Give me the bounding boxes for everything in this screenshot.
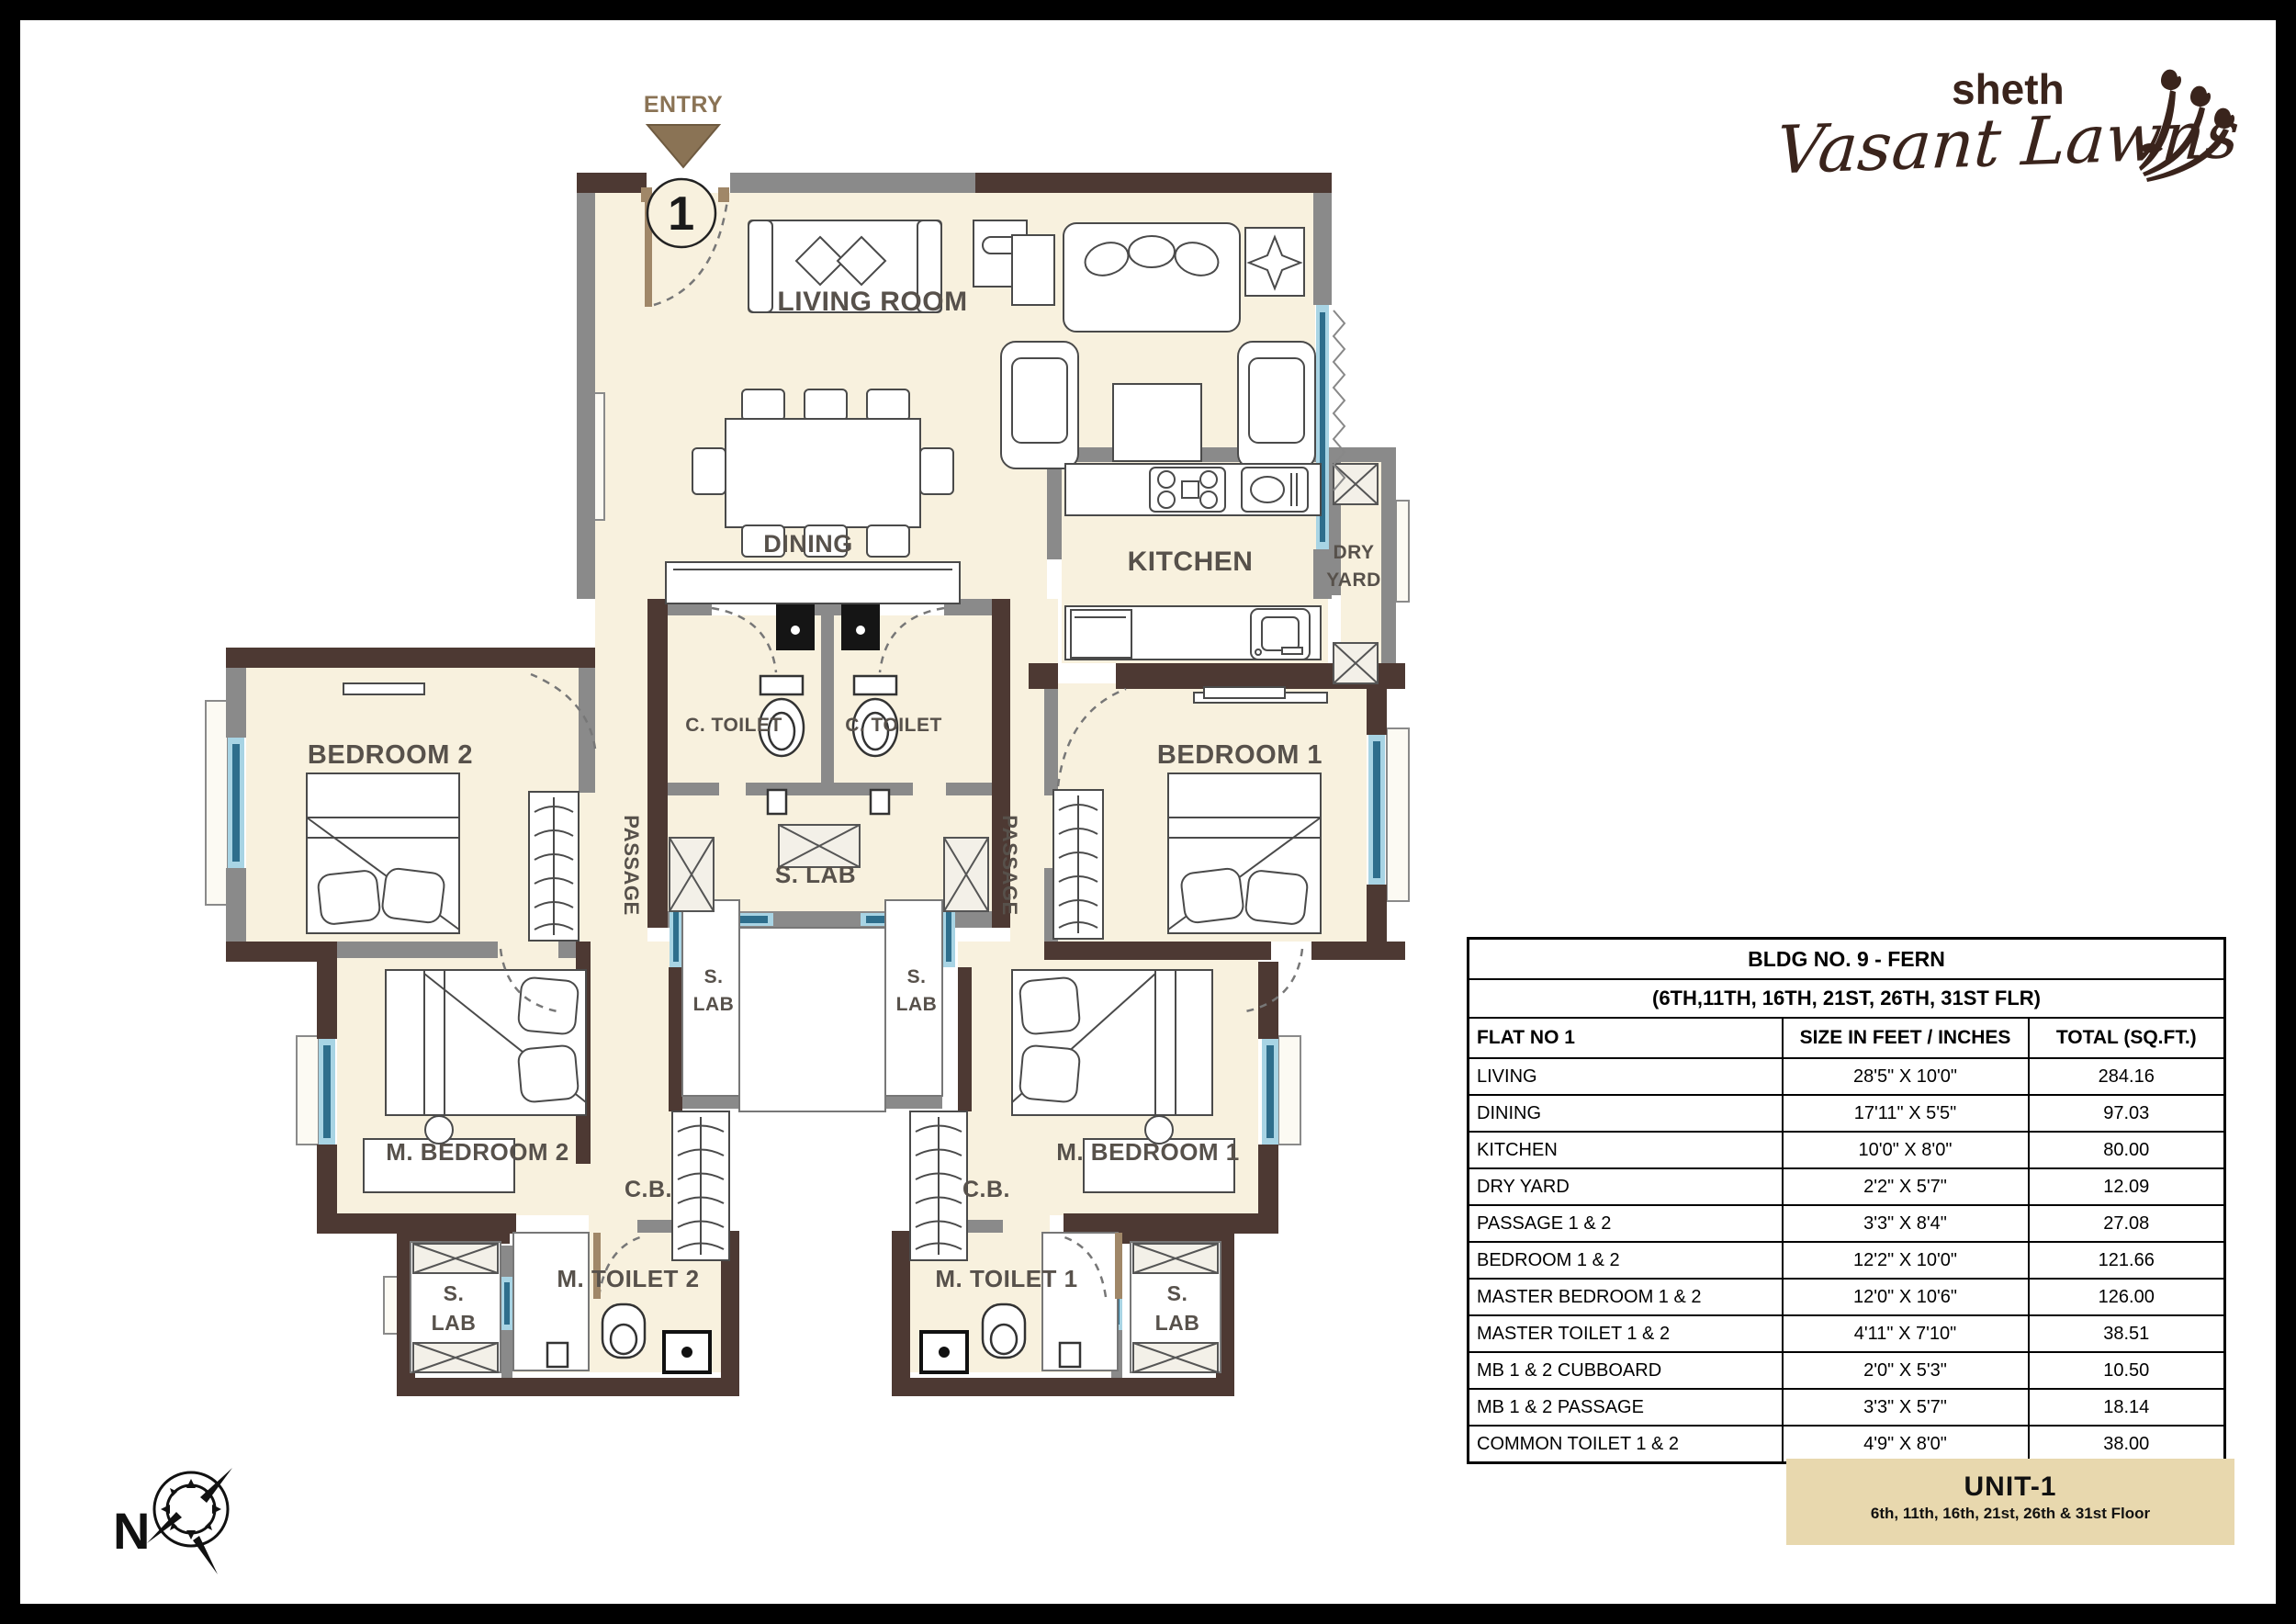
table-row: KITCHEN10'0" X 8'0"80.00	[1469, 1132, 2225, 1168]
label-bedroom-2: BEDROOM 2	[308, 740, 473, 770]
label-s-lab-center: S. LAB	[775, 861, 856, 888]
table-cell: 2'2" X 5'7"	[1783, 1168, 2029, 1205]
table-cell: 28'5" X 10'0"	[1783, 1058, 2029, 1095]
table-cell: 38.00	[2029, 1426, 2225, 1463]
table-cell: BEDROOM 1 & 2	[1469, 1242, 1783, 1279]
label-dry-yard-line2: YARD	[1326, 570, 1381, 591]
label-dry-yard-line1: DRY	[1333, 542, 1374, 563]
table-row: LIVING28'5" X 10'0"284.16	[1469, 1058, 2225, 1095]
table-cell: 18.14	[2029, 1389, 2225, 1426]
label-s-lab-shaft-right-2: LAB	[896, 994, 938, 1015]
logo-script: Vasant Lawns	[1773, 98, 2175, 189]
label-bedroom-1: BEDROOM 1	[1157, 740, 1322, 770]
sheet: ENTRY1LIVING ROOMDININGKITCHENDRYYARDC. …	[20, 20, 2276, 1604]
floorplan: ENTRY1LIVING ROOMDININGKITCHENDRYYARDC. …	[138, 73, 1442, 1442]
table-row: BEDROOM 1 & 212'2" X 10'0"121.66	[1469, 1242, 2225, 1279]
compass-icon: N	[96, 1440, 326, 1606]
table-cell: KITCHEN	[1469, 1132, 1783, 1168]
label-c-toilet-1: C. TOILET	[845, 715, 942, 736]
table-row: MASTER BEDROOM 1 & 212'0" X 10'6"126.00	[1469, 1279, 2225, 1315]
table-row: PASSAGE 1 & 23'3" X 8'4"27.08	[1469, 1205, 2225, 1242]
label-dining: DINING	[763, 530, 853, 558]
label-passage-2: PASSAGE	[998, 815, 1021, 915]
tulip-flowers-icon	[2137, 64, 2238, 193]
col-header-flat: FLAT NO 1	[1469, 1018, 1783, 1058]
table-cell: 17'11" X 5'5"	[1783, 1095, 2029, 1132]
label-c-toilet-2: C. TOILET	[685, 715, 782, 736]
table-cell: 2'0" X 5'3"	[1783, 1352, 2029, 1389]
table-cell: MB 1 & 2 CUBBOARD	[1469, 1352, 1783, 1389]
table-row: MB 1 & 2 PASSAGE3'3" X 5'7"18.14	[1469, 1389, 2225, 1426]
label-s-lab-shaft-right-1: S.	[907, 966, 927, 987]
page: ENTRY1LIVING ROOMDININGKITCHENDRYYARDC. …	[0, 0, 2296, 1624]
table-cell: 38.51	[2029, 1315, 2225, 1352]
label-s-lab-bl-1: S.	[444, 1281, 465, 1305]
table-subtitle: (6TH,11TH, 16TH, 21ST, 26TH, 31ST FLR)	[1469, 979, 2225, 1018]
table-cell: 12'0" X 10'6"	[1783, 1279, 2029, 1315]
table-cell: 121.66	[2029, 1242, 2225, 1279]
table-cell: 126.00	[2029, 1279, 2225, 1315]
table-cell: 4'9" X 8'0"	[1783, 1426, 2029, 1463]
label-kitchen: KITCHEN	[1128, 547, 1254, 577]
table-cell: COMMON TOILET 1 & 2	[1469, 1426, 1783, 1463]
label-m-bedroom-1: M. BEDROOM 1	[1056, 1138, 1240, 1166]
label-entry: ENTRY	[644, 92, 723, 118]
table-cell: 27.08	[2029, 1205, 2225, 1242]
logo: sheth Vasant Lawns	[1777, 48, 2255, 241]
table-cell: LIVING	[1469, 1058, 1783, 1095]
label-entry-door-number: 1	[668, 187, 694, 241]
label-s-lab-shaft-left-1: S.	[704, 966, 724, 987]
label-m-toilet-2: M. TOILET 2	[557, 1265, 699, 1292]
table-row: MB 1 & 2 CUBBOARD2'0" X 5'3"10.50	[1469, 1352, 2225, 1389]
table-cell: MASTER TOILET 1 & 2	[1469, 1315, 1783, 1352]
table-row: DRY YARD2'2" X 5'7"12.09	[1469, 1168, 2225, 1205]
label-s-lab-br-2: LAB	[1155, 1311, 1200, 1335]
label-m-toilet-1: M. TOILET 1	[935, 1265, 1077, 1292]
col-header-total: TOTAL (SQ.FT.)	[2029, 1018, 2225, 1058]
label-living-room: LIVING ROOM	[777, 287, 967, 317]
label-passage-1: PASSAGE	[620, 815, 643, 915]
table-cell: 10.50	[2029, 1352, 2225, 1389]
table-cell: MB 1 & 2 PASSAGE	[1469, 1389, 1783, 1426]
label-cb-left: C.B.	[625, 1177, 672, 1202]
table-title: BLDG NO. 9 - FERN	[1469, 939, 2225, 980]
area-table: BLDG NO. 9 - FERN (6TH,11TH, 16TH, 21ST,…	[1467, 937, 2223, 1464]
table-cell: 284.16	[2029, 1058, 2225, 1095]
table-row: COMMON TOILET 1 & 24'9" X 8'0"38.00	[1469, 1426, 2225, 1463]
table-cell: DRY YARD	[1469, 1168, 1783, 1205]
unit-subtitle: 6th, 11th, 16th, 21st, 26th & 31st Floor	[1786, 1505, 2234, 1523]
table-cell: 3'3" X 5'7"	[1783, 1389, 2029, 1426]
compass-north-label: N	[113, 1502, 150, 1560]
label-s-lab-bl-2: LAB	[432, 1311, 477, 1335]
entry-arrow-icon	[647, 125, 719, 167]
table-cell: 3'3" X 8'4"	[1783, 1205, 2029, 1242]
table-row: MASTER TOILET 1 & 24'11" X 7'10"38.51	[1469, 1315, 2225, 1352]
table-cell: 97.03	[2029, 1095, 2225, 1132]
unit-title: UNIT-1	[1786, 1472, 2234, 1503]
table-cell: PASSAGE 1 & 2	[1469, 1205, 1783, 1242]
label-s-lab-shaft-left-2: LAB	[693, 994, 735, 1015]
table-cell: DINING	[1469, 1095, 1783, 1132]
label-m-bedroom-2: M. BEDROOM 2	[386, 1138, 569, 1166]
unit-banner: UNIT-1 6th, 11th, 16th, 21st, 26th & 31s…	[1786, 1459, 2234, 1545]
table-cell: 80.00	[2029, 1132, 2225, 1168]
label-cb-right: C.B.	[962, 1177, 1010, 1202]
table-cell: 10'0" X 8'0"	[1783, 1132, 2029, 1168]
table-cell: 4'11" X 7'10"	[1783, 1315, 2029, 1352]
area-table-body: LIVING28'5" X 10'0"284.16DINING17'11" X …	[1469, 1058, 2225, 1463]
table-row: DINING17'11" X 5'5"97.03	[1469, 1095, 2225, 1132]
col-header-size: SIZE IN FEET / INCHES	[1783, 1018, 2029, 1058]
table-cell: 12.09	[2029, 1168, 2225, 1205]
label-s-lab-br-1: S.	[1167, 1281, 1188, 1305]
table-cell: 12'2" X 10'0"	[1783, 1242, 2029, 1279]
table-cell: MASTER BEDROOM 1 & 2	[1469, 1279, 1783, 1315]
